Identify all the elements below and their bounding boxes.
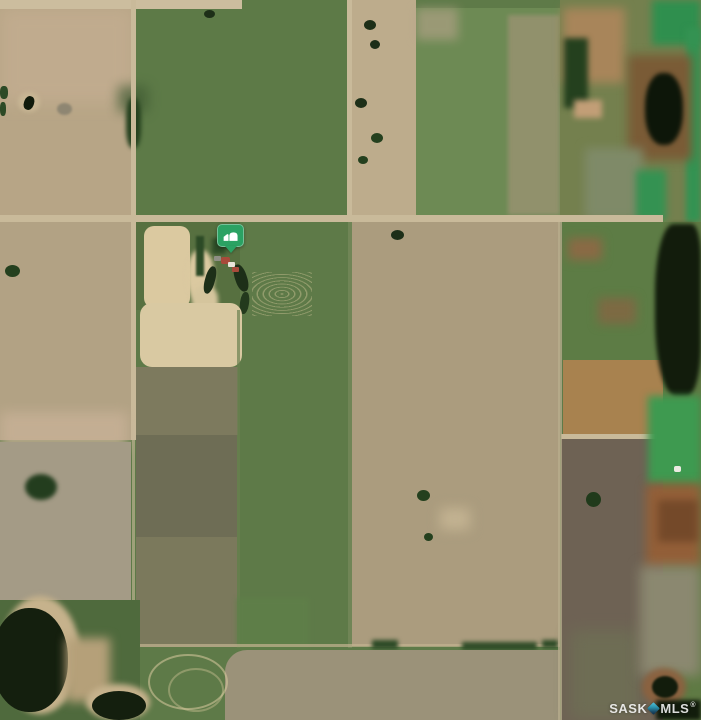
pond-west-small (92, 691, 146, 720)
wetland-marsh-gray (585, 148, 643, 220)
rust-dark-flecks (658, 500, 698, 542)
gray-blob-topleft (57, 103, 72, 115)
road-vertical-mid (347, 0, 352, 221)
green-strip-bright (237, 598, 309, 648)
property-location-marker[interactable] (217, 224, 244, 253)
field-diag-tree-1 (391, 230, 404, 240)
wetland-pond-dark (645, 73, 683, 145)
wetland-dark-trees (564, 38, 588, 108)
hummock-brown-2 (598, 298, 636, 324)
marsh-gray-east (640, 566, 701, 676)
marker-badge (217, 224, 244, 247)
watermark-sask-text: SASK (609, 701, 647, 716)
pasture-mid-dark (136, 435, 237, 537)
field-striped-pink-corner (416, 8, 458, 40)
road-top-strip (0, 0, 242, 9)
road-horizontal (0, 215, 663, 222)
watermark-mls-text: MLS (660, 701, 689, 716)
boundary-vertical-east (558, 222, 562, 720)
map-canvas[interactable]: SASK MLS ® (0, 0, 701, 720)
field-striped-tan-east-half (508, 15, 560, 215)
white-dot-building (674, 466, 681, 472)
trees-left-lower (5, 265, 20, 277)
green-dot-left-edge-2 (0, 102, 6, 116)
field-topleft-pink-wash (0, 8, 133, 103)
field-diag-light-blob (440, 508, 470, 530)
pond-dot-topmid (204, 10, 215, 18)
bush-line-3 (542, 640, 558, 648)
saskmls-watermark: SASK MLS ® (609, 701, 696, 716)
trail-loop-2 (168, 668, 224, 712)
pond-east-large (655, 224, 701, 396)
boundary-vertical-mid-lower (348, 222, 352, 648)
field-bottom-gray (225, 650, 560, 720)
field-diag-tree-2 (417, 490, 430, 501)
farm-barn-icon (222, 230, 240, 242)
registered-trademark-symbol: ® (690, 702, 696, 709)
yard-scribble-patch (144, 226, 190, 308)
bush-line-2 (462, 642, 537, 650)
yard-scratches-east (252, 272, 312, 316)
field-big-diagonal (352, 222, 560, 646)
pasture-mid-olive (136, 537, 237, 647)
tree-dot-strip-2 (370, 40, 380, 49)
tree-gray-shadow (25, 474, 57, 500)
green-dot-left-edge-1 (0, 86, 8, 99)
yard-shelterbelt (196, 236, 204, 276)
field-topmid-green (136, 0, 347, 218)
pasture-mid-brown-upper (136, 367, 238, 435)
bush-line-1 (372, 640, 398, 649)
field-diag-tree-3 (424, 533, 433, 541)
hummock-brown-1 (568, 238, 602, 260)
pond-west-large (0, 608, 68, 712)
dark-knob (586, 492, 601, 507)
pond-east-small (652, 676, 678, 698)
mls-diamond-icon (648, 702, 661, 715)
field-topright-tan-strip (352, 0, 416, 218)
tree-dot-strip-5 (358, 156, 368, 164)
marker-pointer (225, 246, 237, 253)
tree-dot-strip-4 (371, 133, 383, 143)
field-left-tan-lower (0, 222, 131, 440)
wetland-emerald-low (636, 170, 666, 220)
yard-building-gray (214, 256, 221, 261)
tree-dot-strip-1 (364, 20, 376, 30)
bale-yard-tan-patch (140, 303, 242, 367)
wetland-pink-spot (574, 100, 602, 118)
tree-dot-strip-3 (355, 98, 367, 108)
yard-building-red-2 (232, 267, 239, 272)
